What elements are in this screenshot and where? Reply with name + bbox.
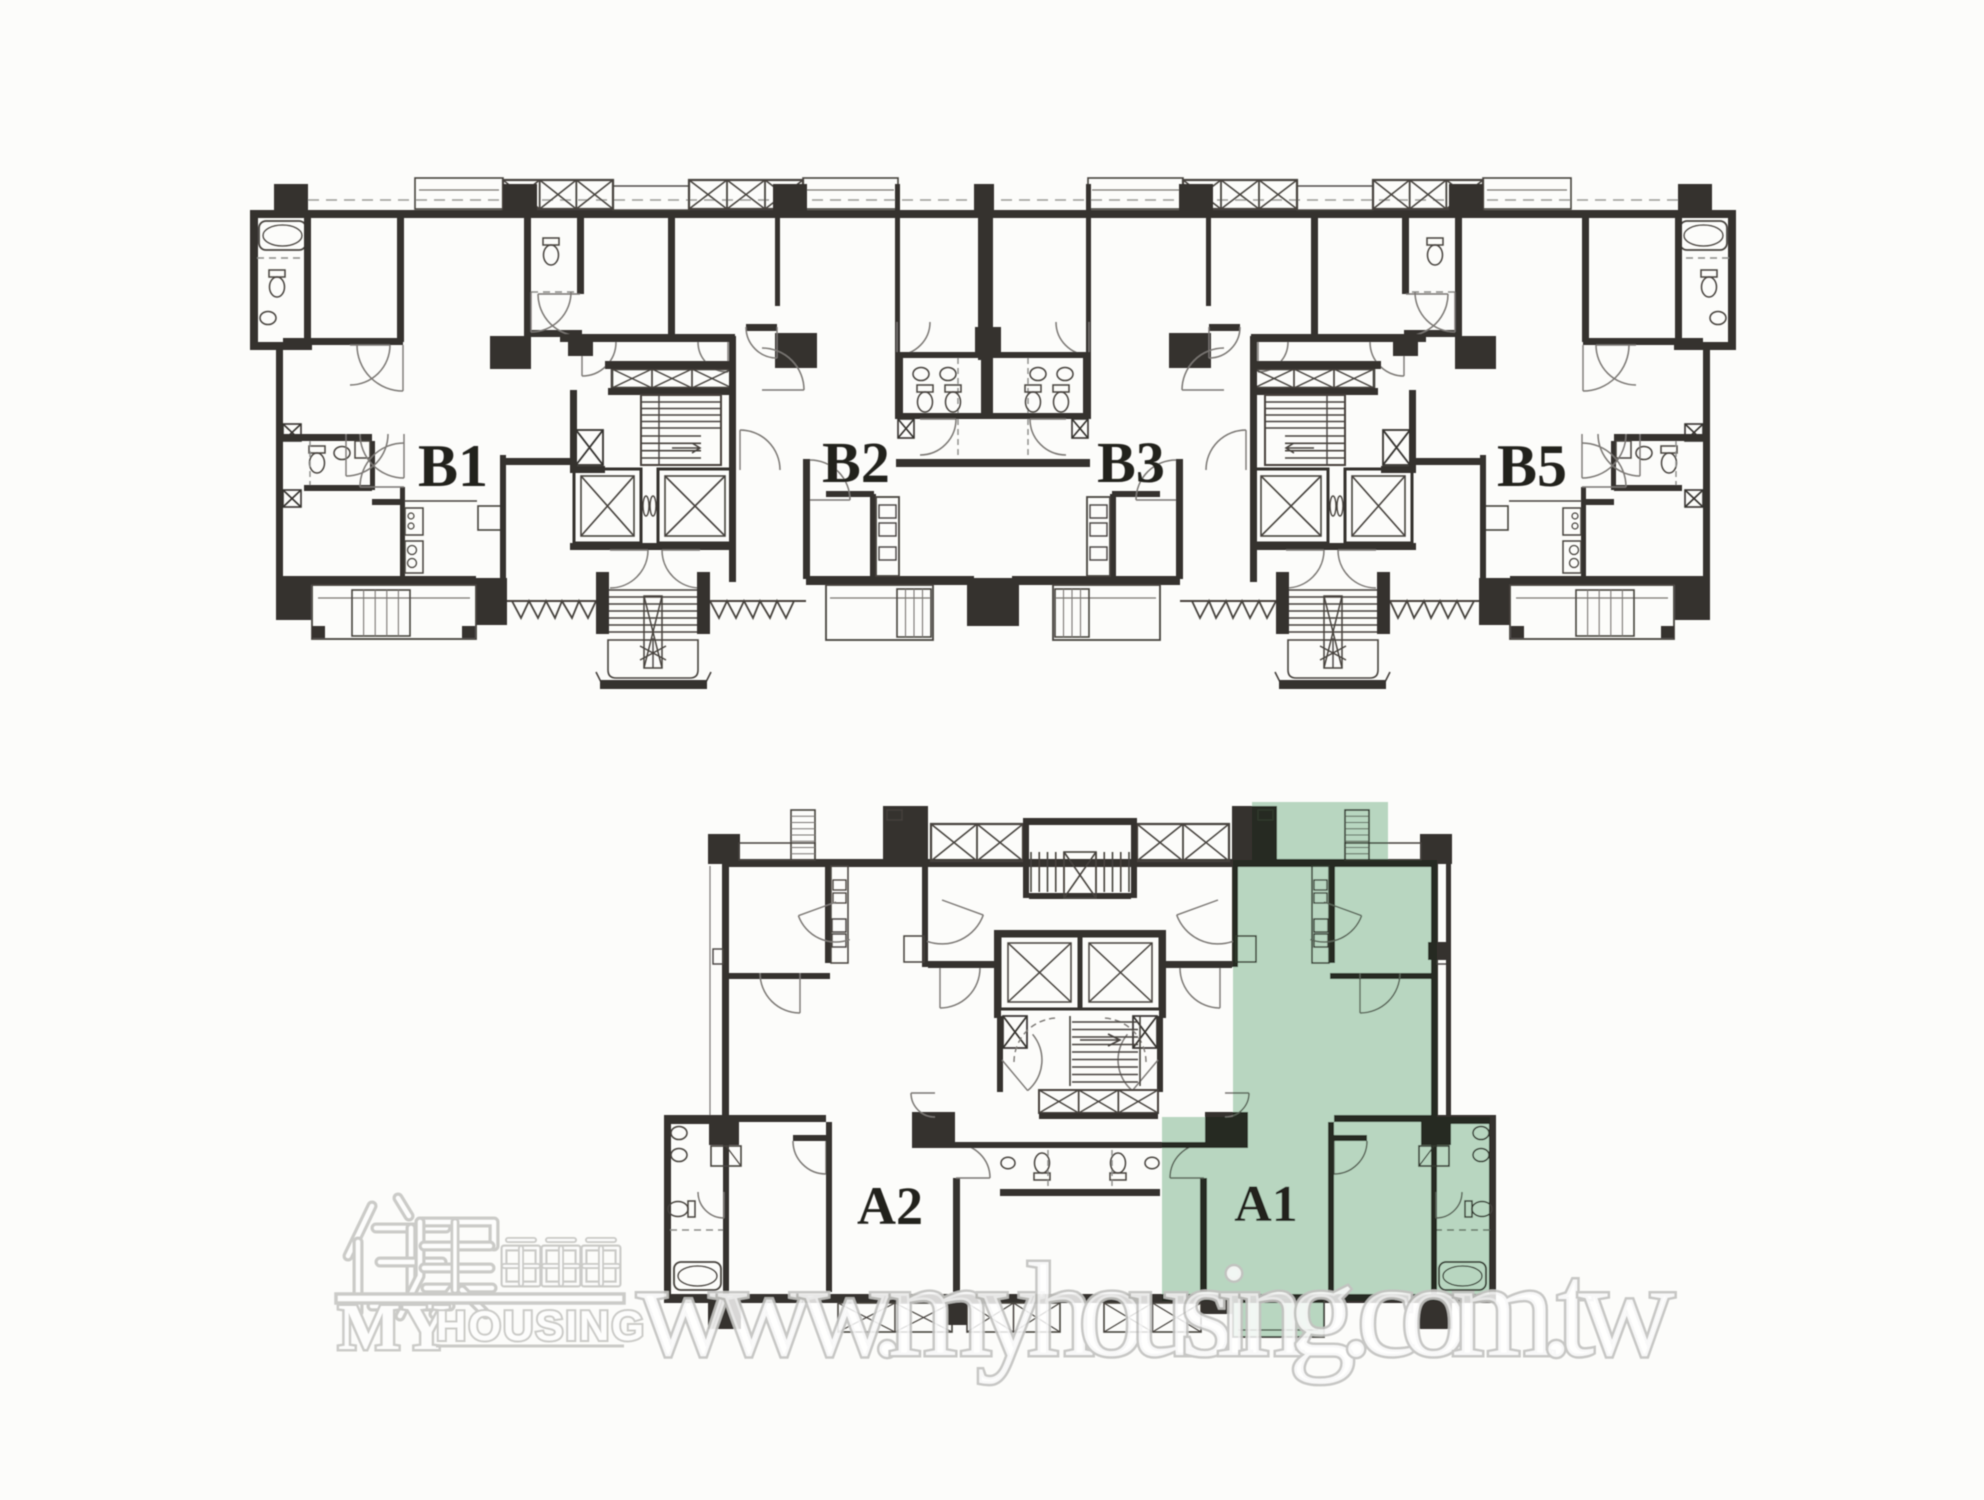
svg-text:B1: B1 bbox=[418, 433, 488, 499]
svg-text:B3: B3 bbox=[1097, 430, 1165, 495]
svg-text:MY: MY bbox=[338, 1291, 452, 1364]
svg-text:A2: A2 bbox=[857, 1176, 923, 1236]
svg-text:A1: A1 bbox=[1234, 1176, 1298, 1233]
svg-text:www.myhousing.com.tw: www.myhousing.com.tw bbox=[637, 1236, 1675, 1384]
svg-text:B2: B2 bbox=[822, 430, 890, 495]
svg-text:B5: B5 bbox=[1497, 433, 1567, 499]
svg-text:HOUSING: HOUSING bbox=[436, 1302, 646, 1349]
